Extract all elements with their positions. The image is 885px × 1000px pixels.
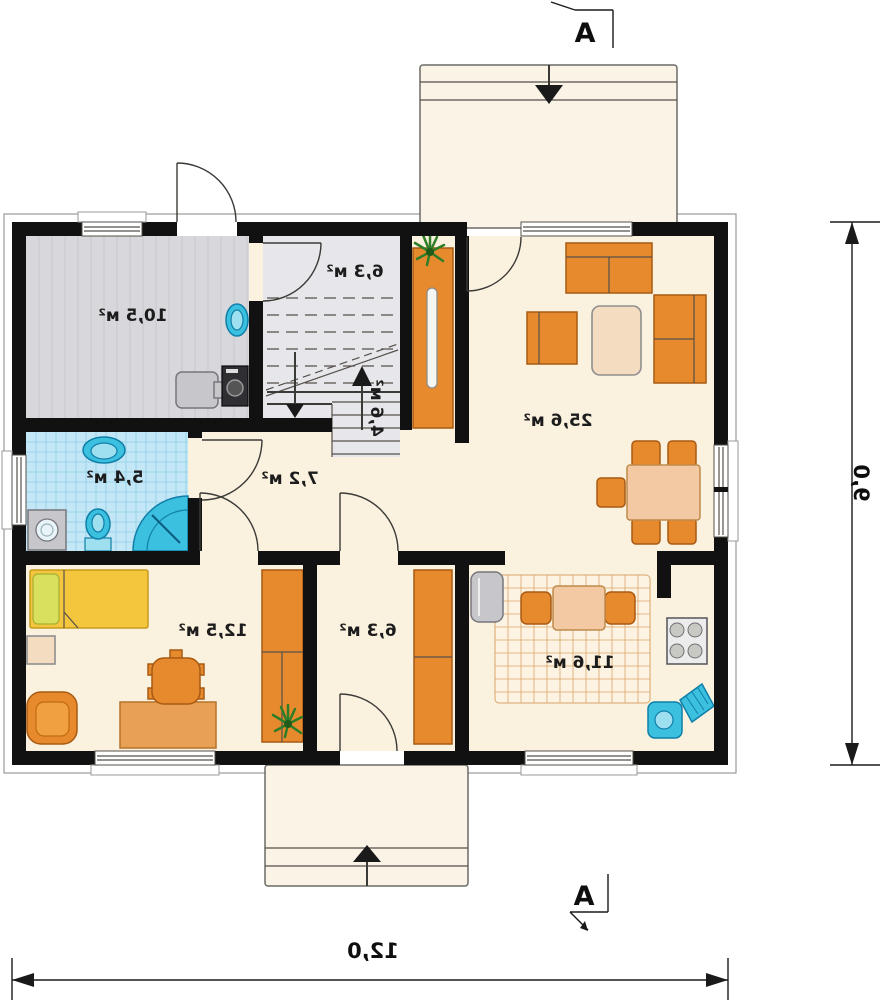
section-letter-bottom: A	[573, 881, 594, 912]
stove	[667, 618, 707, 664]
label-kitchen: 11,6 м²	[545, 653, 614, 673]
desk	[120, 702, 216, 748]
armchair-living	[527, 312, 577, 364]
kitchen-chair	[605, 592, 635, 624]
coffee-table	[592, 306, 641, 375]
window-kitchen	[525, 751, 633, 765]
kitchen-chair	[521, 592, 551, 624]
fridge	[471, 572, 503, 622]
floor-plan-page: 10,5 м² 6,3 м² 4,6 м² 25,6 м² 5,4 м² 7,2…	[0, 0, 885, 1000]
terrace-porch-bottom	[265, 765, 468, 886]
dining-table	[627, 465, 700, 520]
dining-chair	[668, 518, 696, 544]
label-bedroom: 12,5 м²	[178, 621, 247, 641]
hall-cabinet	[413, 233, 453, 428]
dining-chair	[597, 478, 625, 507]
label-stairs-lower: 4,6 м²	[366, 379, 386, 436]
dimension-width-label: 12,0	[347, 939, 399, 963]
window-living-top	[521, 222, 632, 236]
section-letter-top: A	[574, 18, 595, 49]
dining-chair	[632, 518, 660, 544]
label-corridor: 6,3 м²	[339, 621, 396, 641]
cabinet-handle	[427, 288, 437, 388]
floor-plan-drawing: 10,5 м² 6,3 м² 4,6 м² 25,6 м² 5,4 м² 7,2…	[0, 0, 885, 1000]
pillow	[33, 574, 59, 624]
window-bathroom	[12, 455, 26, 525]
label-utility: 10,5 м²	[98, 306, 167, 326]
label-stair-hall: 6,3 м²	[326, 262, 383, 282]
corridor-furniture	[414, 570, 452, 744]
dining-chair	[668, 441, 696, 467]
boiler	[176, 372, 218, 408]
bedside-table	[27, 636, 55, 664]
window-living-right	[714, 445, 728, 537]
label-bathroom: 5,4 м²	[86, 468, 143, 488]
dimension-width: 12,0	[12, 939, 728, 1000]
dimension-height: 9,0	[830, 222, 880, 765]
section-marker-bottom: A	[570, 874, 608, 931]
kitchen-table	[553, 586, 605, 630]
label-hall: 7,2 м²	[261, 469, 318, 489]
label-living: 25,6 м²	[523, 411, 592, 431]
window-utility	[82, 222, 142, 236]
entrance-porch-top	[420, 65, 677, 228]
toilet-tank	[85, 538, 111, 551]
door-utility-exterior	[177, 163, 236, 222]
dining-chair	[632, 441, 660, 467]
section-marker-top: A	[551, 2, 613, 49]
window-bedroom	[95, 751, 215, 765]
dimension-height-label: 9,0	[849, 464, 873, 501]
